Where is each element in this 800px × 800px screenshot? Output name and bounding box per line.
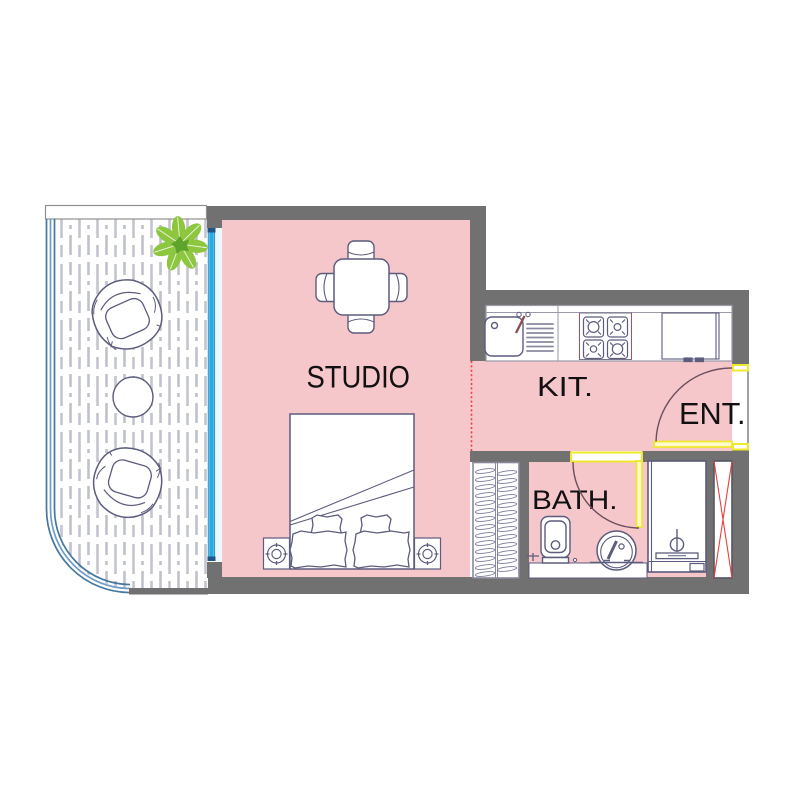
svg-text:BATH.: BATH. (532, 485, 618, 515)
svg-text:KIT.: KIT. (537, 371, 593, 402)
svg-text:STUDIO: STUDIO (307, 359, 411, 395)
svg-text:ENT.: ENT. (679, 397, 746, 431)
